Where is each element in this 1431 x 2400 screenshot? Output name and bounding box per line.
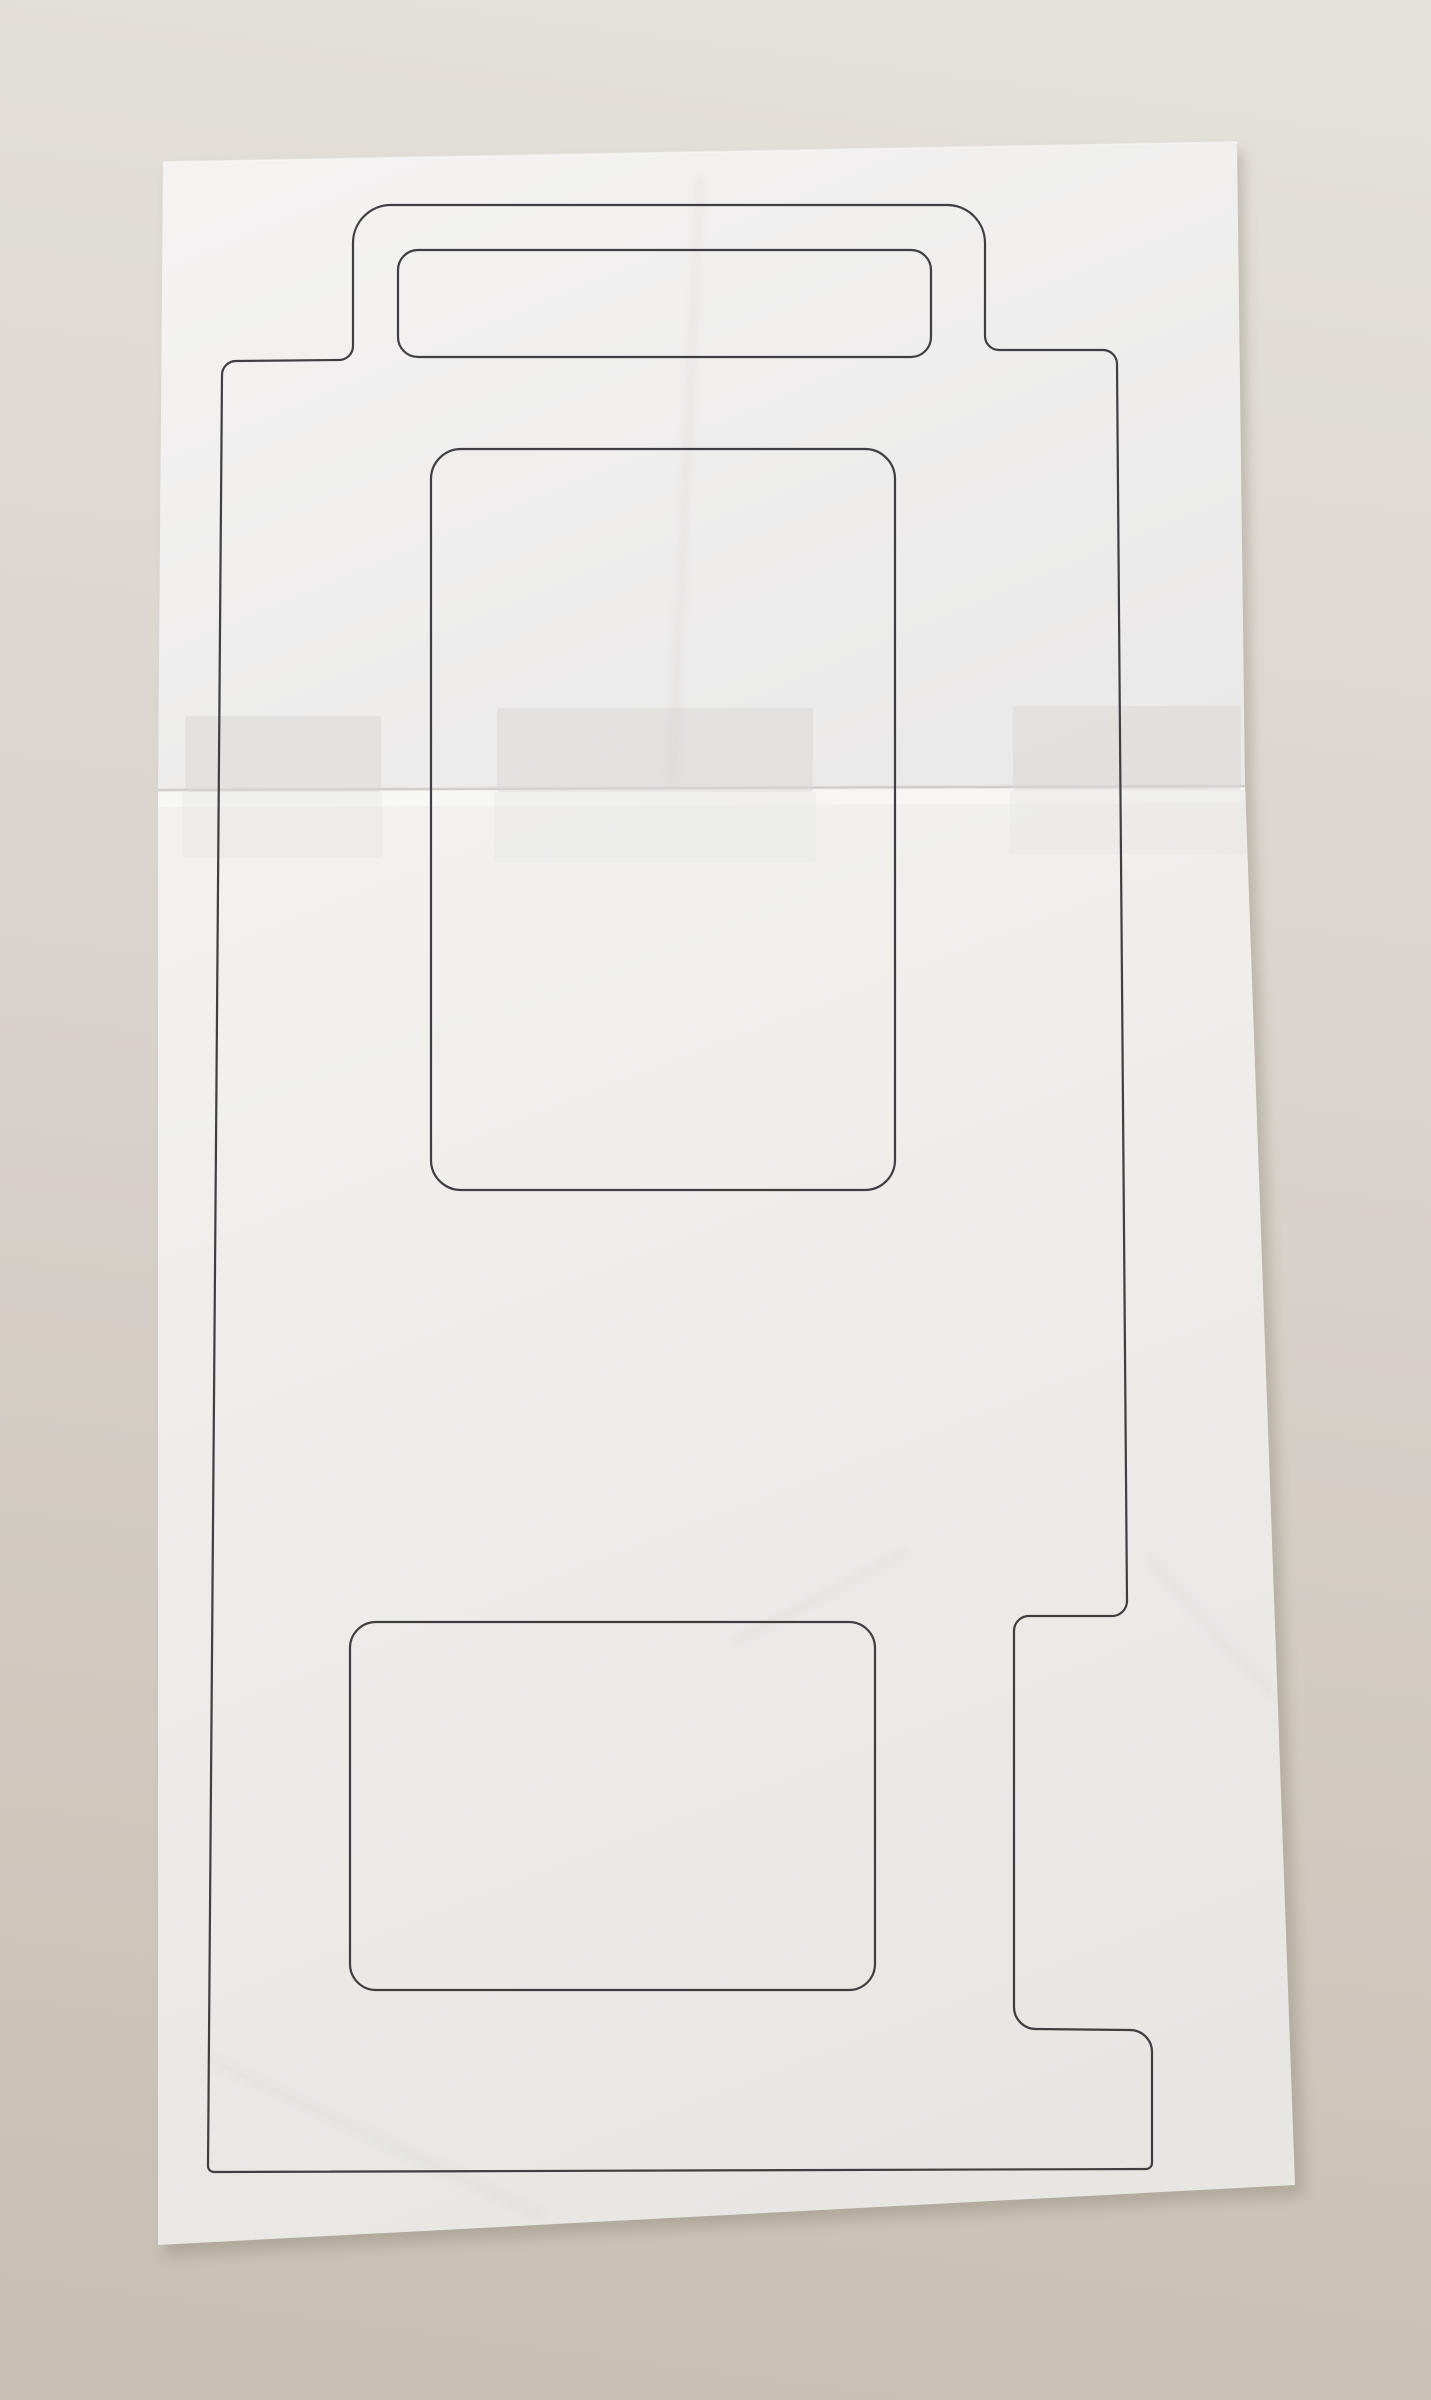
paper-sheet-bottom [158, 784, 1295, 2245]
tape-strip-right-above [1013, 706, 1241, 790]
tape-strip-right-below [1010, 790, 1246, 854]
paper-sheet-top [158, 142, 1245, 788]
photo-canvas [0, 0, 1431, 2400]
tape-strip-middle-below [494, 792, 816, 862]
photo-of-paper-template [0, 0, 1431, 2400]
tape-strip-left-above [185, 716, 381, 792]
tape-strip-left-below [182, 792, 382, 858]
tape-strip-middle-above [497, 708, 813, 792]
tape-strips [182, 706, 1246, 862]
